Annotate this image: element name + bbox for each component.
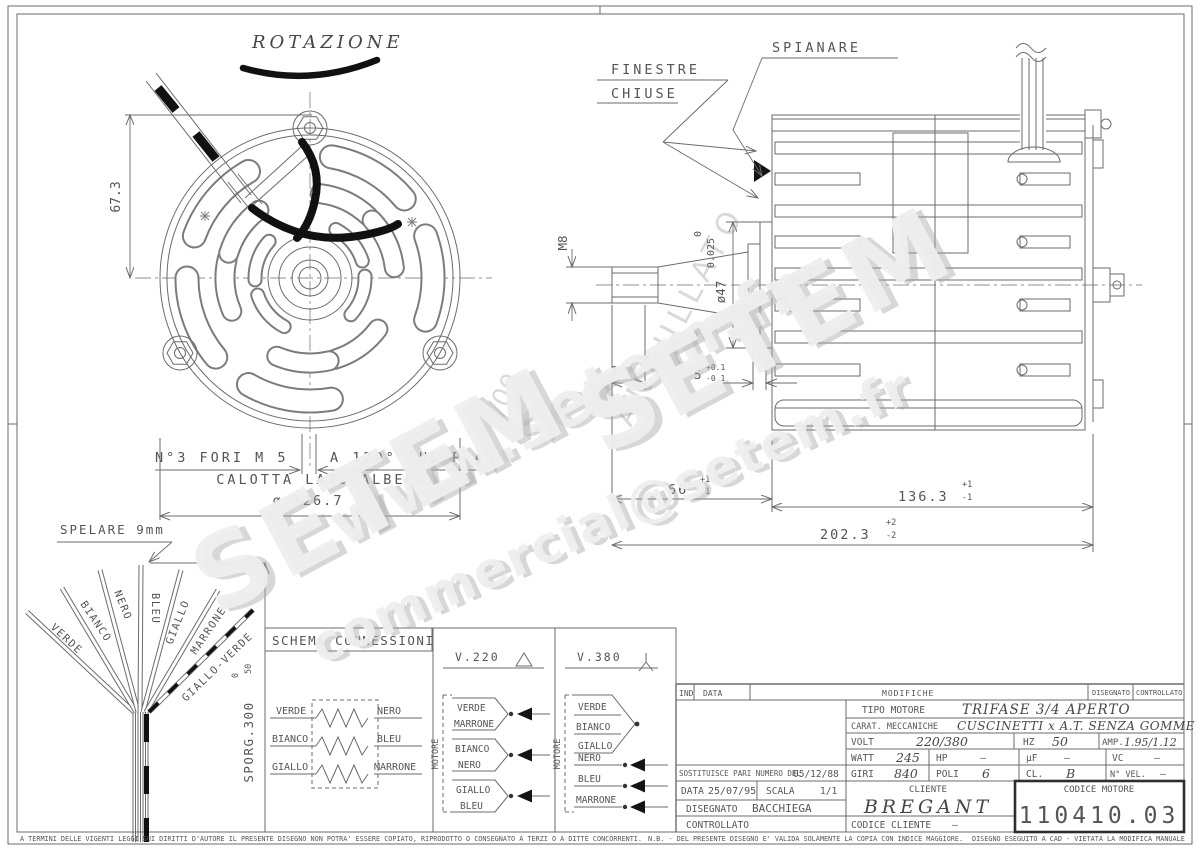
tb-cliente-label: CLIENTE <box>909 785 947 795</box>
winding-bianco: BIANCO <box>272 734 308 745</box>
finish-mark-triangle <box>754 160 771 182</box>
tb-codcli-value: – <box>952 820 959 831</box>
v380-bianco: BIANCO <box>576 722 611 733</box>
tb-tipo-value: TRIFASE 3/4 APERTO <box>962 702 1131 718</box>
end-bracket <box>1085 118 1124 428</box>
tb-vc-label: VC <box>1112 753 1123 764</box>
finestre-leader: FINESTRE CHIUSE <box>597 62 758 198</box>
v380-diagram: V.380 MOTORE VERDE BIANCO GIALLO NERO BL… <box>553 650 668 814</box>
watermarks: www.setem.fr www.setem.fr SETEM SETEM SE… <box>173 181 980 679</box>
tb-carat-value: CUSCINETTI x A.T. SENZA GOMME <box>957 719 1195 733</box>
tb-tipo-label: TIPO MOTORE <box>862 705 925 716</box>
tb-giri-value: 840 <box>894 766 918 781</box>
v220-bianco: BIANCO <box>455 744 490 755</box>
v220-giallo: GIALLO <box>456 785 491 796</box>
title-block: IND DATA MODIFICHE DISEGNATO CONTROLLATO… <box>676 684 1195 832</box>
tb-cl-label: CL. <box>1026 769 1043 780</box>
dim-202-minus: -2 <box>886 531 896 541</box>
tb-hp-value: – <box>980 753 987 764</box>
v380-motore-label: MOTORE <box>553 739 563 770</box>
v220-motore-label: MOTORE <box>431 739 441 770</box>
disclaimer-right: DISEGNO ESEGUITO A CAD - VIETATA LA MODI… <box>972 835 1185 843</box>
dim-136-text: 136.3 <box>898 489 949 505</box>
technical-drawing-sheet: ROTAZIONE 67.3 N°3 FORI M 5 A 120° SUL R… <box>0 0 1200 849</box>
top-cable <box>1008 44 1060 163</box>
winding-marrone: MARRONE <box>374 762 416 773</box>
spelare-label: SPELARE 9mm <box>60 522 165 537</box>
tb-amp-value: 1.95/1.12 <box>1124 736 1177 749</box>
finestre-label-2: CHIUSE <box>611 86 678 102</box>
dim-m8: M8 <box>555 235 612 321</box>
disclaimer-mid: N.B. - DEL PRESENTE DISEGNO E' VALIDA SO… <box>648 835 963 843</box>
tb-nvel-value: – <box>1160 769 1167 780</box>
v220-diagram: V.220 MOTORE VERDE MARRONE BIANCO NERO G… <box>431 650 550 812</box>
tb-sostituisce: SOSTITUISCE PARI NUMERO DEL <box>679 769 801 778</box>
sporg-text: SPORG.300 <box>241 701 256 782</box>
tb-hp-label: HP <box>936 753 948 764</box>
tb-disegnato-label: DISEGNATO <box>686 804 738 815</box>
tb-amp-label: AMP. <box>1102 738 1124 748</box>
v380-marrone: MARRONE <box>576 795 616 806</box>
tb-uf-label: µF <box>1026 753 1038 764</box>
v380-nero: NERO <box>578 753 601 764</box>
wire-label-bleu: BLEU <box>149 593 161 624</box>
fori-note: N°3 FORI M 5 <box>155 450 289 466</box>
v220-nero: NERO <box>458 760 481 771</box>
tb-cl-value: B <box>1065 766 1075 781</box>
tb-watt-label: WATT <box>851 753 874 764</box>
winding-nero: NERO <box>377 706 401 717</box>
spianare-label: SPIANARE <box>772 40 861 56</box>
dim-202: 202.3 +2 -2 <box>612 518 1093 545</box>
tb-carat-label: CARAT. MECCANICHE <box>851 722 938 732</box>
sporg-plus: 50 <box>244 664 254 674</box>
tb-poli-label: POLI <box>936 769 959 780</box>
sporg-minus: 0 <box>231 673 241 678</box>
tb-disegnato-col: DISEGNATO <box>1092 689 1130 697</box>
dim-202-plus: +2 <box>886 518 896 528</box>
tb-data-col: DATA <box>703 689 722 698</box>
tb-volt-value: 220/380 <box>915 734 968 749</box>
drawing-canvas: ROTAZIONE 67.3 N°3 FORI M 5 A 120° SUL R… <box>0 0 1200 849</box>
rotation-arrow <box>243 60 377 76</box>
tb-sostituisce-date: 05/12/88 <box>793 769 839 780</box>
tb-data-label: DATA <box>681 786 704 797</box>
v380-verde: VERDE <box>578 702 607 713</box>
disclaimer-left: A TERMINI DELLE VIGENTI LEGGI SUI DIRITT… <box>20 835 642 843</box>
dim-136-minus: -1 <box>962 493 972 503</box>
wire-verde <box>27 612 134 712</box>
tb-giri-label: GIRI <box>851 769 874 780</box>
v380-giallo: GIALLO <box>578 741 613 752</box>
spianare-leader: SPIANARE <box>733 40 898 176</box>
tb-controllato-col: CONTROLLATO <box>1136 689 1182 697</box>
tb-nvel-label: N° VEL. <box>1110 770 1146 780</box>
v380-bleu: BLEU <box>578 774 601 785</box>
tb-controllato-label: CONTROLLATO <box>686 820 749 831</box>
tb-data-value: 25/07/95 <box>708 786 756 797</box>
tb-modifiche: MODIFICHE <box>882 689 934 698</box>
cable-black-band-2 <box>297 142 317 238</box>
winding-verde: VERDE <box>276 706 306 717</box>
footer-strip: A TERMINI DELLE VIGENTI LEGGI SUI DIRITT… <box>20 835 1185 843</box>
spelare-leader: SPELARE 9mm <box>57 522 172 562</box>
finestre-label-1: FINESTRE <box>611 62 700 78</box>
v220-title: V.220 <box>455 650 500 664</box>
tb-volt-label: VOLT <box>851 737 874 748</box>
tb-codcli-label: CODICE CLIENTE <box>851 820 931 831</box>
wire-bleu <box>140 565 141 712</box>
tb-poli-value: 6 <box>982 766 990 781</box>
windings-diagram: VERDE BIANCO GIALLO NERO BLEU MARRONE <box>270 700 422 788</box>
v220-marrone: MARRONE <box>454 719 494 730</box>
tb-watt-value: 245 <box>895 750 920 765</box>
delta-icon <box>516 653 532 666</box>
tb-uf-value: – <box>1064 753 1071 764</box>
tb-codmot-value: 110410.03 <box>1019 803 1180 829</box>
dim-m8-text: M8 <box>555 235 570 250</box>
tb-vc-value: – <box>1154 753 1161 764</box>
tb-ind: IND <box>679 689 694 698</box>
v380-title: V.380 <box>577 650 622 664</box>
v220-verde: VERDE <box>457 703 486 714</box>
tb-disegnato-value: BACCHIEGA <box>752 802 812 815</box>
v220-bleu: BLEU <box>460 801 483 812</box>
dim-136-plus: +1 <box>962 480 972 490</box>
tb-cliente-value: BREGANT <box>863 796 992 818</box>
rotazione-label: ROTAZIONE <box>251 32 404 53</box>
winding-giallo: GIALLO <box>272 762 308 773</box>
tb-hz-label: HZ <box>1023 737 1035 748</box>
winding-bleu: BLEU <box>377 734 401 745</box>
tb-hz-value: 50 <box>1052 734 1068 749</box>
tb-codmot-label: CODICE MOTORE <box>1064 785 1134 795</box>
dim-67-3-text: 67.3 <box>109 181 124 212</box>
tb-scala-label: SCALA <box>766 786 795 797</box>
dim-202-text: 202.3 <box>820 527 871 543</box>
tb-scala-value: 1/1 <box>820 786 837 797</box>
